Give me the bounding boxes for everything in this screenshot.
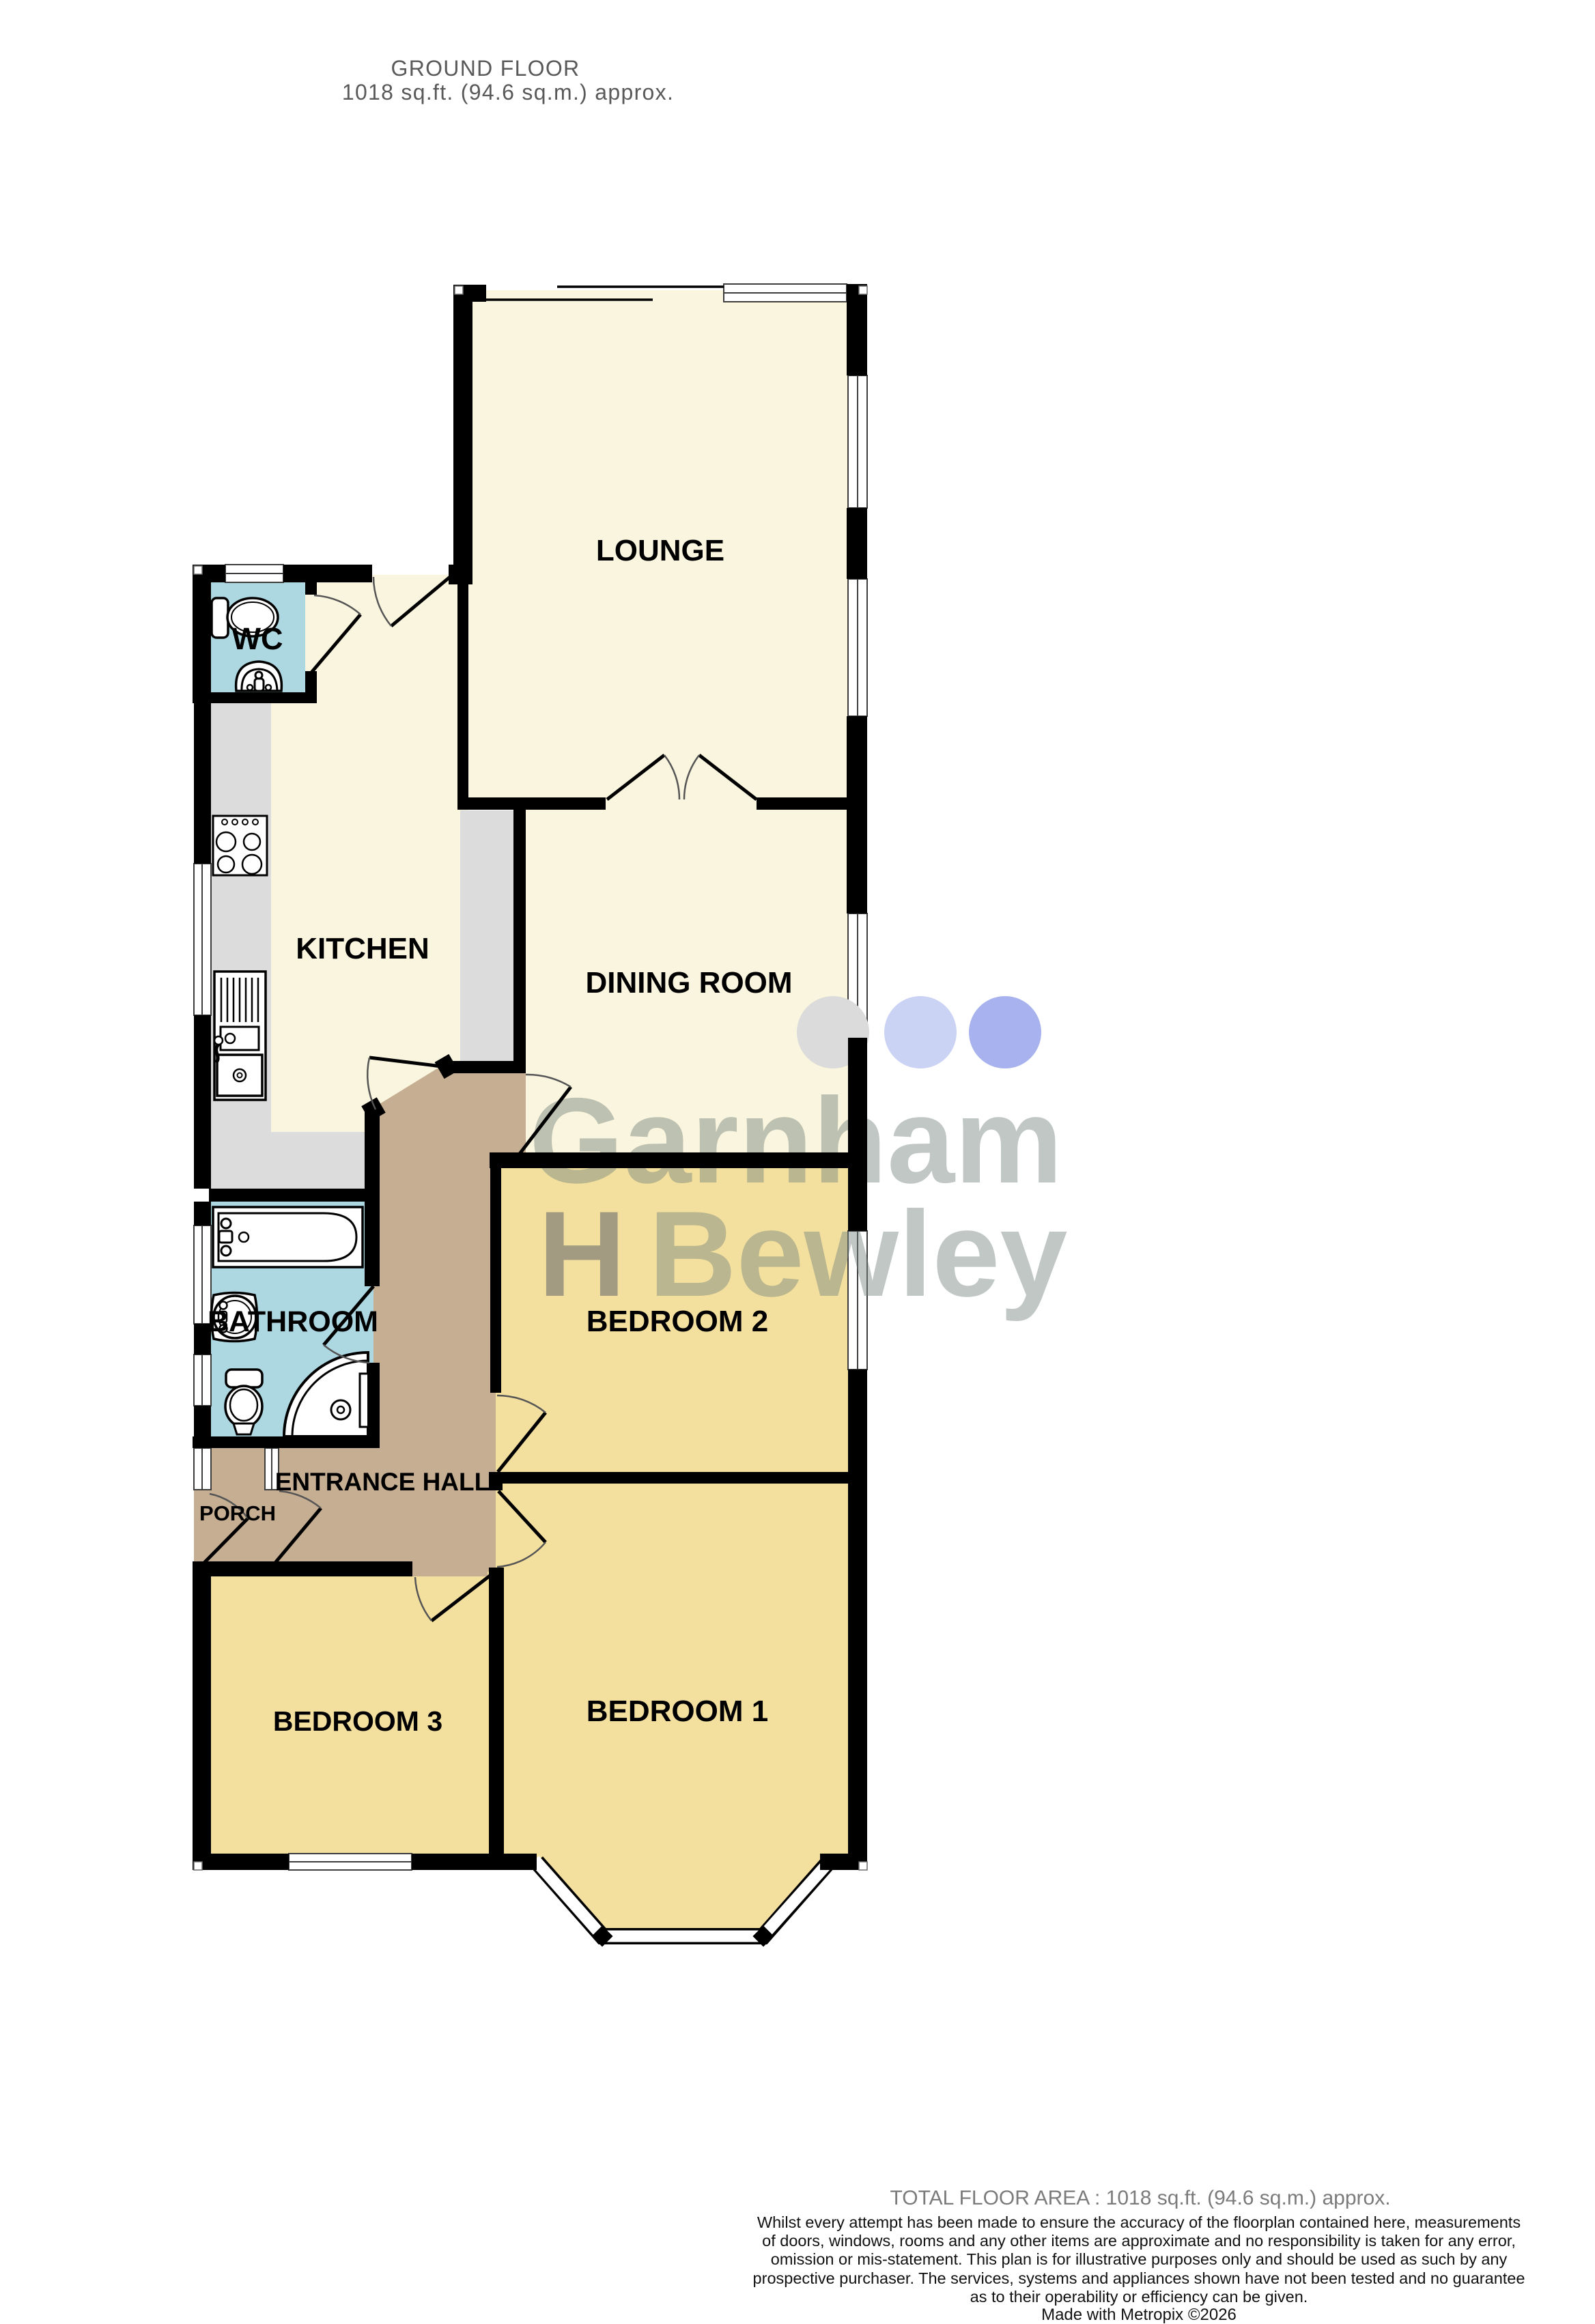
svg-text:BATHROOM: BATHROOM bbox=[208, 1305, 378, 1338]
svg-text:TOTAL FLOOR AREA : 1018 sq.ft.: TOTAL FLOOR AREA : 1018 sq.ft. (94.6 sq.… bbox=[890, 2187, 1390, 2209]
svg-text:BEDROOM 1: BEDROOM 1 bbox=[587, 1695, 768, 1728]
svg-text:ENTRANCE HALL: ENTRANCE HALL bbox=[275, 1468, 490, 1496]
svg-text:omission or mis-statement. Thi: omission or mis-statement. This plan is … bbox=[771, 2250, 1508, 2268]
svg-text:GROUND FLOOR: GROUND FLOOR bbox=[391, 56, 580, 81]
svg-text:as to their operability or eff: as to their operability or efficiency ca… bbox=[970, 2288, 1308, 2306]
svg-text:WC: WC bbox=[232, 621, 283, 656]
svg-text:H: H bbox=[538, 1186, 626, 1322]
svg-text:LOUNGE: LOUNGE bbox=[596, 534, 724, 567]
svg-text:1018 sq.ft. (94.6 sq.m.) appro: 1018 sq.ft. (94.6 sq.m.) approx. bbox=[342, 80, 674, 104]
svg-text:Whilst every attempt has been: Whilst every attempt has been made to en… bbox=[757, 2213, 1521, 2231]
svg-text:Made with Metropix ©2026: Made with Metropix ©2026 bbox=[1041, 2306, 1237, 2324]
svg-text:PORCH: PORCH bbox=[199, 1501, 276, 1525]
svg-text:prospective purchaser. The ser: prospective purchaser. The services, sys… bbox=[753, 2269, 1525, 2287]
svg-text:BEDROOM 3: BEDROOM 3 bbox=[273, 1705, 442, 1737]
svg-text:BEDROOM 2: BEDROOM 2 bbox=[587, 1305, 768, 1338]
svg-text:DINING ROOM: DINING ROOM bbox=[585, 966, 792, 1000]
svg-text:of doors, windows, rooms and a: of doors, windows, rooms and any other i… bbox=[762, 2232, 1516, 2250]
svg-text:KITCHEN: KITCHEN bbox=[296, 932, 429, 965]
